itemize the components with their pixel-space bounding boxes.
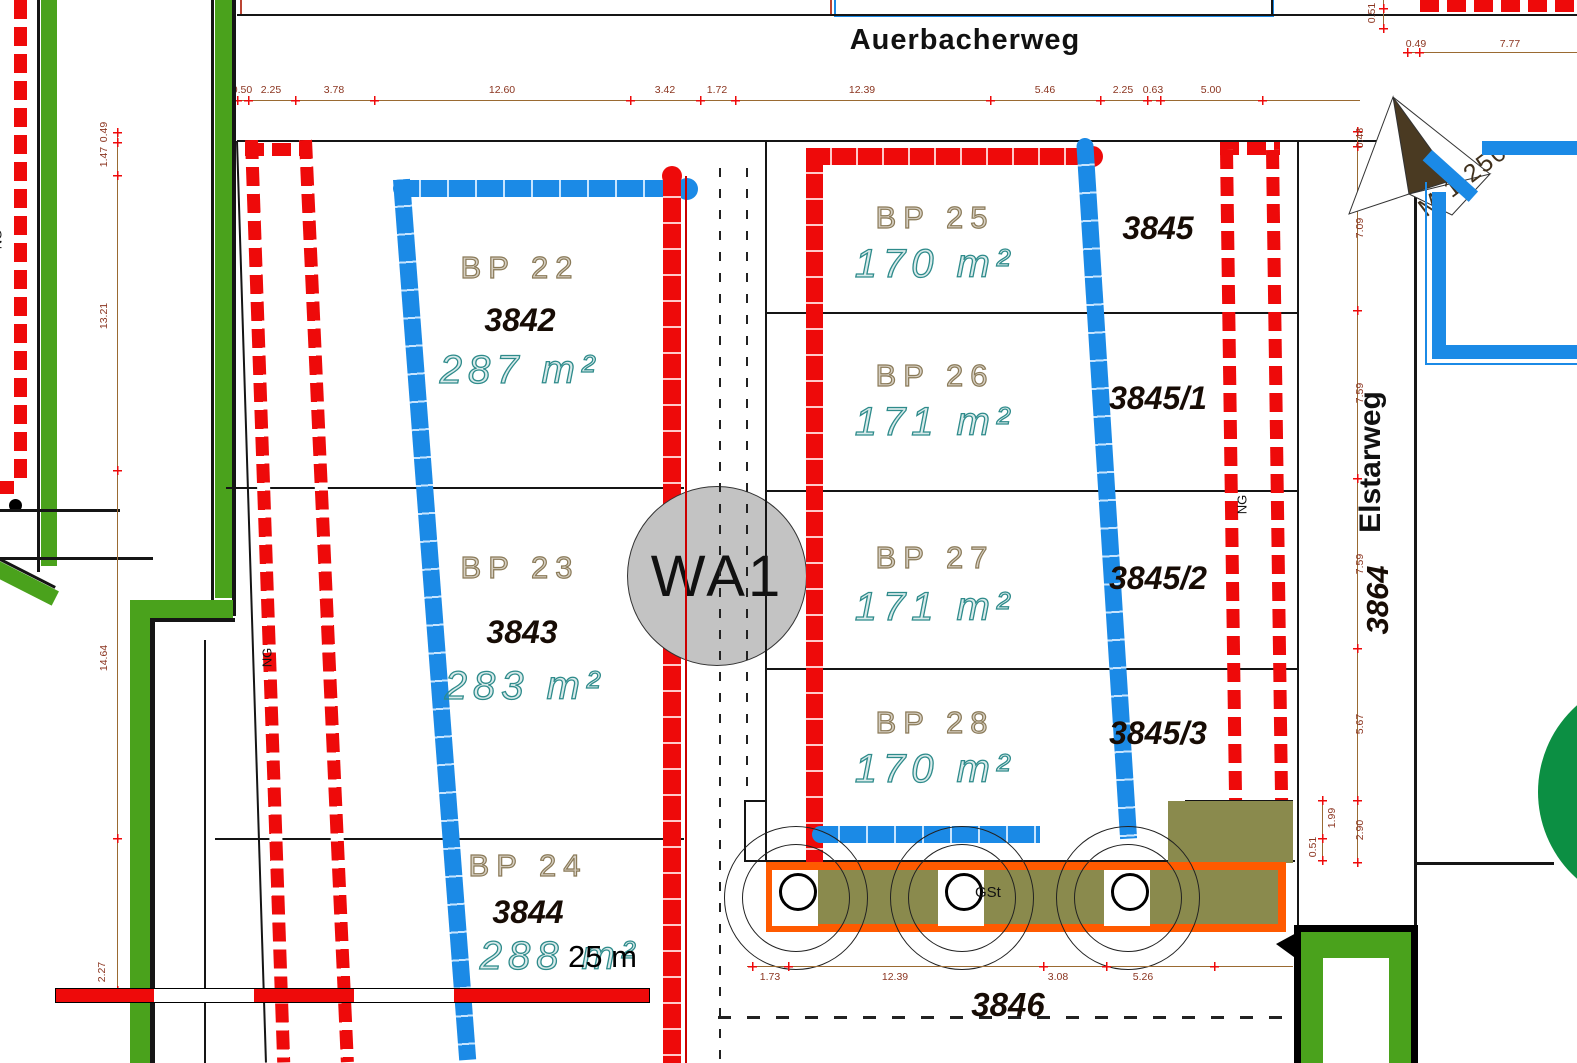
dim-tick	[291, 96, 300, 105]
dim-label: 3.08	[1038, 971, 1078, 983]
dim-tick	[113, 128, 122, 137]
boundary-arrow-icon	[1276, 932, 1298, 960]
parcel-number: 3844	[378, 894, 678, 931]
right-block-left-boundary	[765, 141, 767, 862]
dim-label: 5.26	[1123, 971, 1163, 983]
blue-utility-line	[393, 180, 683, 197]
parcel-area: 288 m²	[430, 934, 690, 979]
right-block-right-boundary	[1297, 141, 1299, 926]
red-dashed-boundary	[14, 0, 27, 484]
red-dashed-building-limit	[1266, 150, 1289, 852]
dim-label: 5.46	[1025, 84, 1065, 96]
parcel-bp-label: BP 22	[370, 250, 670, 286]
dim-label: 7.77	[1490, 38, 1530, 50]
tree-trunk-icon	[1111, 873, 1149, 911]
dim-label: 1.72	[697, 84, 737, 96]
dim-tick	[244, 96, 253, 105]
dim-label: 7.59	[1354, 373, 1366, 413]
red-planning-line	[806, 148, 1094, 165]
dim-label: 0.63	[1133, 84, 1173, 96]
parcel-separator	[766, 668, 1298, 670]
red-dashed-band-top-right	[1420, 0, 1577, 12]
parcel-number: 3845	[1048, 210, 1268, 247]
parcel-area: 170 m²	[795, 747, 1075, 792]
parcel-bp-label: BP 24	[378, 848, 678, 884]
side-road-edge	[0, 509, 120, 512]
road-edge	[232, 0, 236, 616]
dim-tick	[1096, 96, 1105, 105]
tree-trunk-icon	[779, 873, 817, 911]
dim-label: 1.73	[750, 971, 790, 983]
parcel-area: 283 m²	[375, 664, 675, 709]
dim-tick	[1353, 474, 1362, 483]
red-dashed-boundary	[0, 481, 19, 494]
dim-tick	[1156, 96, 1165, 105]
dim-label: 0.49	[1396, 38, 1436, 50]
green-frame-inner	[1323, 958, 1389, 1063]
dim-tick	[1210, 962, 1219, 971]
dim-tick	[1102, 962, 1111, 971]
parcel-number-3846: 3846	[908, 986, 1108, 1024]
dim-chain-right-inner	[1322, 800, 1323, 862]
gst-label: GSt	[975, 884, 1001, 901]
green-strip	[215, 0, 232, 598]
dim-tick	[1143, 96, 1152, 105]
parcel-separator	[766, 312, 1298, 314]
dim-tick	[696, 96, 705, 105]
parcel-number: 3845/3	[1048, 715, 1268, 752]
street-name-auerbacherweg: Auerbacherweg	[810, 24, 1120, 57]
road-edge	[211, 0, 214, 600]
side-road-edge	[0, 557, 153, 560]
site-plan: Auerbacherweg 0.50 2.25 3.78 12.60 3.42 …	[0, 0, 1577, 1063]
dim-tick	[1379, 4, 1388, 13]
green-strip	[41, 0, 57, 566]
road-edge	[150, 618, 235, 622]
large-tree-canopy	[1538, 676, 1577, 908]
path-dashed-line	[719, 168, 721, 1063]
scale-bar-label: 25 m	[568, 939, 637, 975]
red-line-endcap	[662, 166, 682, 186]
dim-label: 13.21	[98, 296, 110, 336]
parcel-bp-label: BP 27	[795, 540, 1075, 576]
parcel-bp-label: BP 26	[795, 358, 1075, 394]
blue-utility-line	[1432, 192, 1446, 352]
dim-tick	[1039, 962, 1048, 971]
dim-label: 12.39	[875, 971, 915, 983]
dim-tick	[748, 962, 757, 971]
dim-label: 3.78	[314, 84, 354, 96]
dim-tick	[1353, 644, 1362, 653]
dim-tick	[113, 138, 122, 147]
dim-label: 0.51	[1307, 827, 1319, 867]
parcel-bp-label: BP 28	[795, 705, 1075, 741]
ng-label: NG	[0, 230, 4, 250]
street-edge-tick	[1271, 0, 1273, 15]
elstarweg-edge	[1414, 862, 1554, 865]
dim-tick	[986, 96, 995, 105]
parcel-number: 3845/2	[1048, 560, 1268, 597]
dim-tick	[1379, 24, 1388, 33]
dim-tick	[1318, 856, 1327, 865]
dim-tick	[626, 96, 635, 105]
dim-tick	[1353, 796, 1362, 805]
dim-tick	[113, 171, 122, 180]
dim-tick	[1353, 858, 1362, 867]
planting-block	[1168, 801, 1293, 863]
dim-tick	[731, 96, 740, 105]
dim-label: 2.90	[1354, 810, 1366, 850]
parcel-area: 287 m²	[370, 348, 670, 393]
parcel-number: 3845/1	[1048, 380, 1268, 417]
parcel-number: 3843	[372, 614, 672, 651]
path-dashed-line	[746, 168, 748, 798]
boundary-step	[744, 800, 766, 802]
road-edge	[37, 0, 40, 572]
dim-label: 2.25	[251, 84, 291, 96]
parcel-area: 170 m²	[795, 242, 1075, 287]
dim-label: 1.47	[98, 137, 110, 177]
parcel-separator	[766, 490, 1298, 492]
parcel-bp-label: BP 25	[795, 200, 1075, 236]
scale-bar	[55, 988, 650, 1003]
dim-chain-top	[237, 100, 1360, 101]
blue-utility-outline	[1425, 182, 1427, 365]
blue-utility-line	[1432, 345, 1577, 359]
dim-chain-corner-h	[1405, 52, 1577, 53]
dim-label: 1.99	[1326, 798, 1338, 838]
blue-utility-outline	[1425, 363, 1577, 365]
parcel-number: 3842	[370, 302, 670, 339]
dim-label: 12.60	[482, 84, 522, 96]
dim-tick	[1258, 96, 1267, 105]
dim-label: 3.42	[645, 84, 685, 96]
dim-tick	[784, 962, 793, 971]
dim-tick	[1353, 306, 1362, 315]
dim-label: 12.39	[842, 84, 882, 96]
ng-label: NG	[1234, 495, 1249, 515]
dim-label: 2.27	[96, 952, 108, 992]
dim-label: 14.64	[98, 638, 110, 678]
red-dashed-building-limit	[299, 140, 354, 1063]
dim-tick	[370, 96, 379, 105]
dim-tick	[113, 466, 122, 475]
dim-label: 5.67	[1354, 704, 1366, 744]
blue-utility-line	[1482, 141, 1577, 155]
dim-label: 0.51	[1366, 0, 1378, 33]
dim-label: 5.00	[1191, 84, 1231, 96]
parcel-separator	[226, 487, 684, 489]
zone-label: WA1	[651, 543, 784, 610]
dim-chain-left	[117, 128, 118, 990]
dim-tick	[113, 834, 122, 843]
ng-label: NG	[259, 648, 274, 668]
dim-label: 7.59	[1354, 544, 1366, 584]
parcel-area: 171 m²	[795, 585, 1075, 630]
thin-red-parcel-line	[685, 176, 687, 1063]
parcel-area: 171 m²	[795, 400, 1075, 445]
parcel-bp-label: BP 23	[370, 550, 670, 586]
